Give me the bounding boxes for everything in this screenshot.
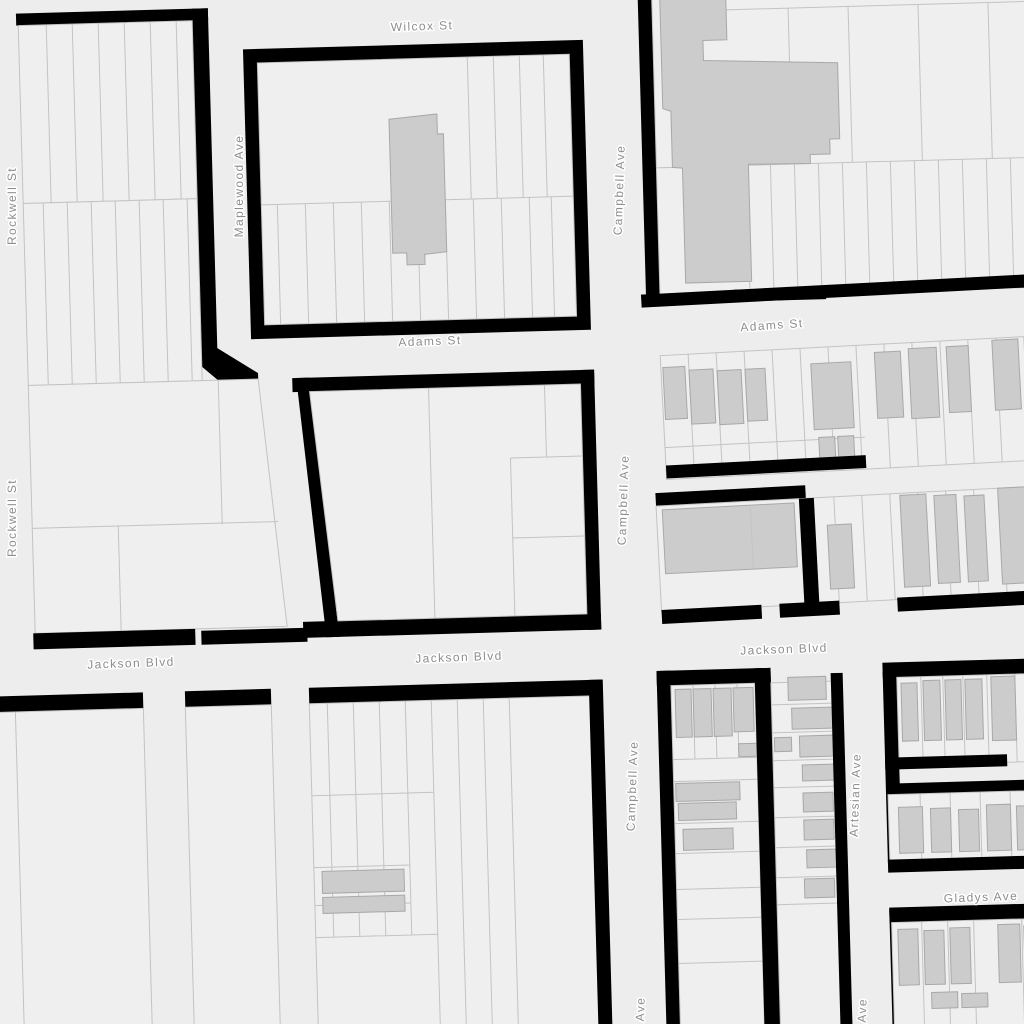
block-top-right bbox=[638, 0, 1024, 304]
map-canvas[interactable]: Wilcox StMaplewood AveCampbell AveRockwe… bbox=[0, 0, 1024, 1024]
street-label: Wilcox St bbox=[390, 18, 453, 34]
street-label: Rockwell St bbox=[5, 167, 19, 245]
block-central bbox=[243, 40, 591, 339]
street-label: Adams St bbox=[398, 333, 462, 349]
street-label: Rockwell St bbox=[5, 479, 19, 557]
street-label: Maplewood Ave bbox=[232, 135, 246, 238]
street-label: Gladys Ave bbox=[944, 889, 1019, 906]
block-mid-south bbox=[292, 370, 601, 638]
blocks-southeast bbox=[882, 657, 1024, 1024]
blocks-south-central bbox=[656, 666, 852, 1024]
street-label: Campbell Ave bbox=[631, 996, 648, 1024]
street-label: Artesian Ave bbox=[853, 998, 870, 1024]
street-label: Artesian Ave bbox=[847, 753, 864, 837]
